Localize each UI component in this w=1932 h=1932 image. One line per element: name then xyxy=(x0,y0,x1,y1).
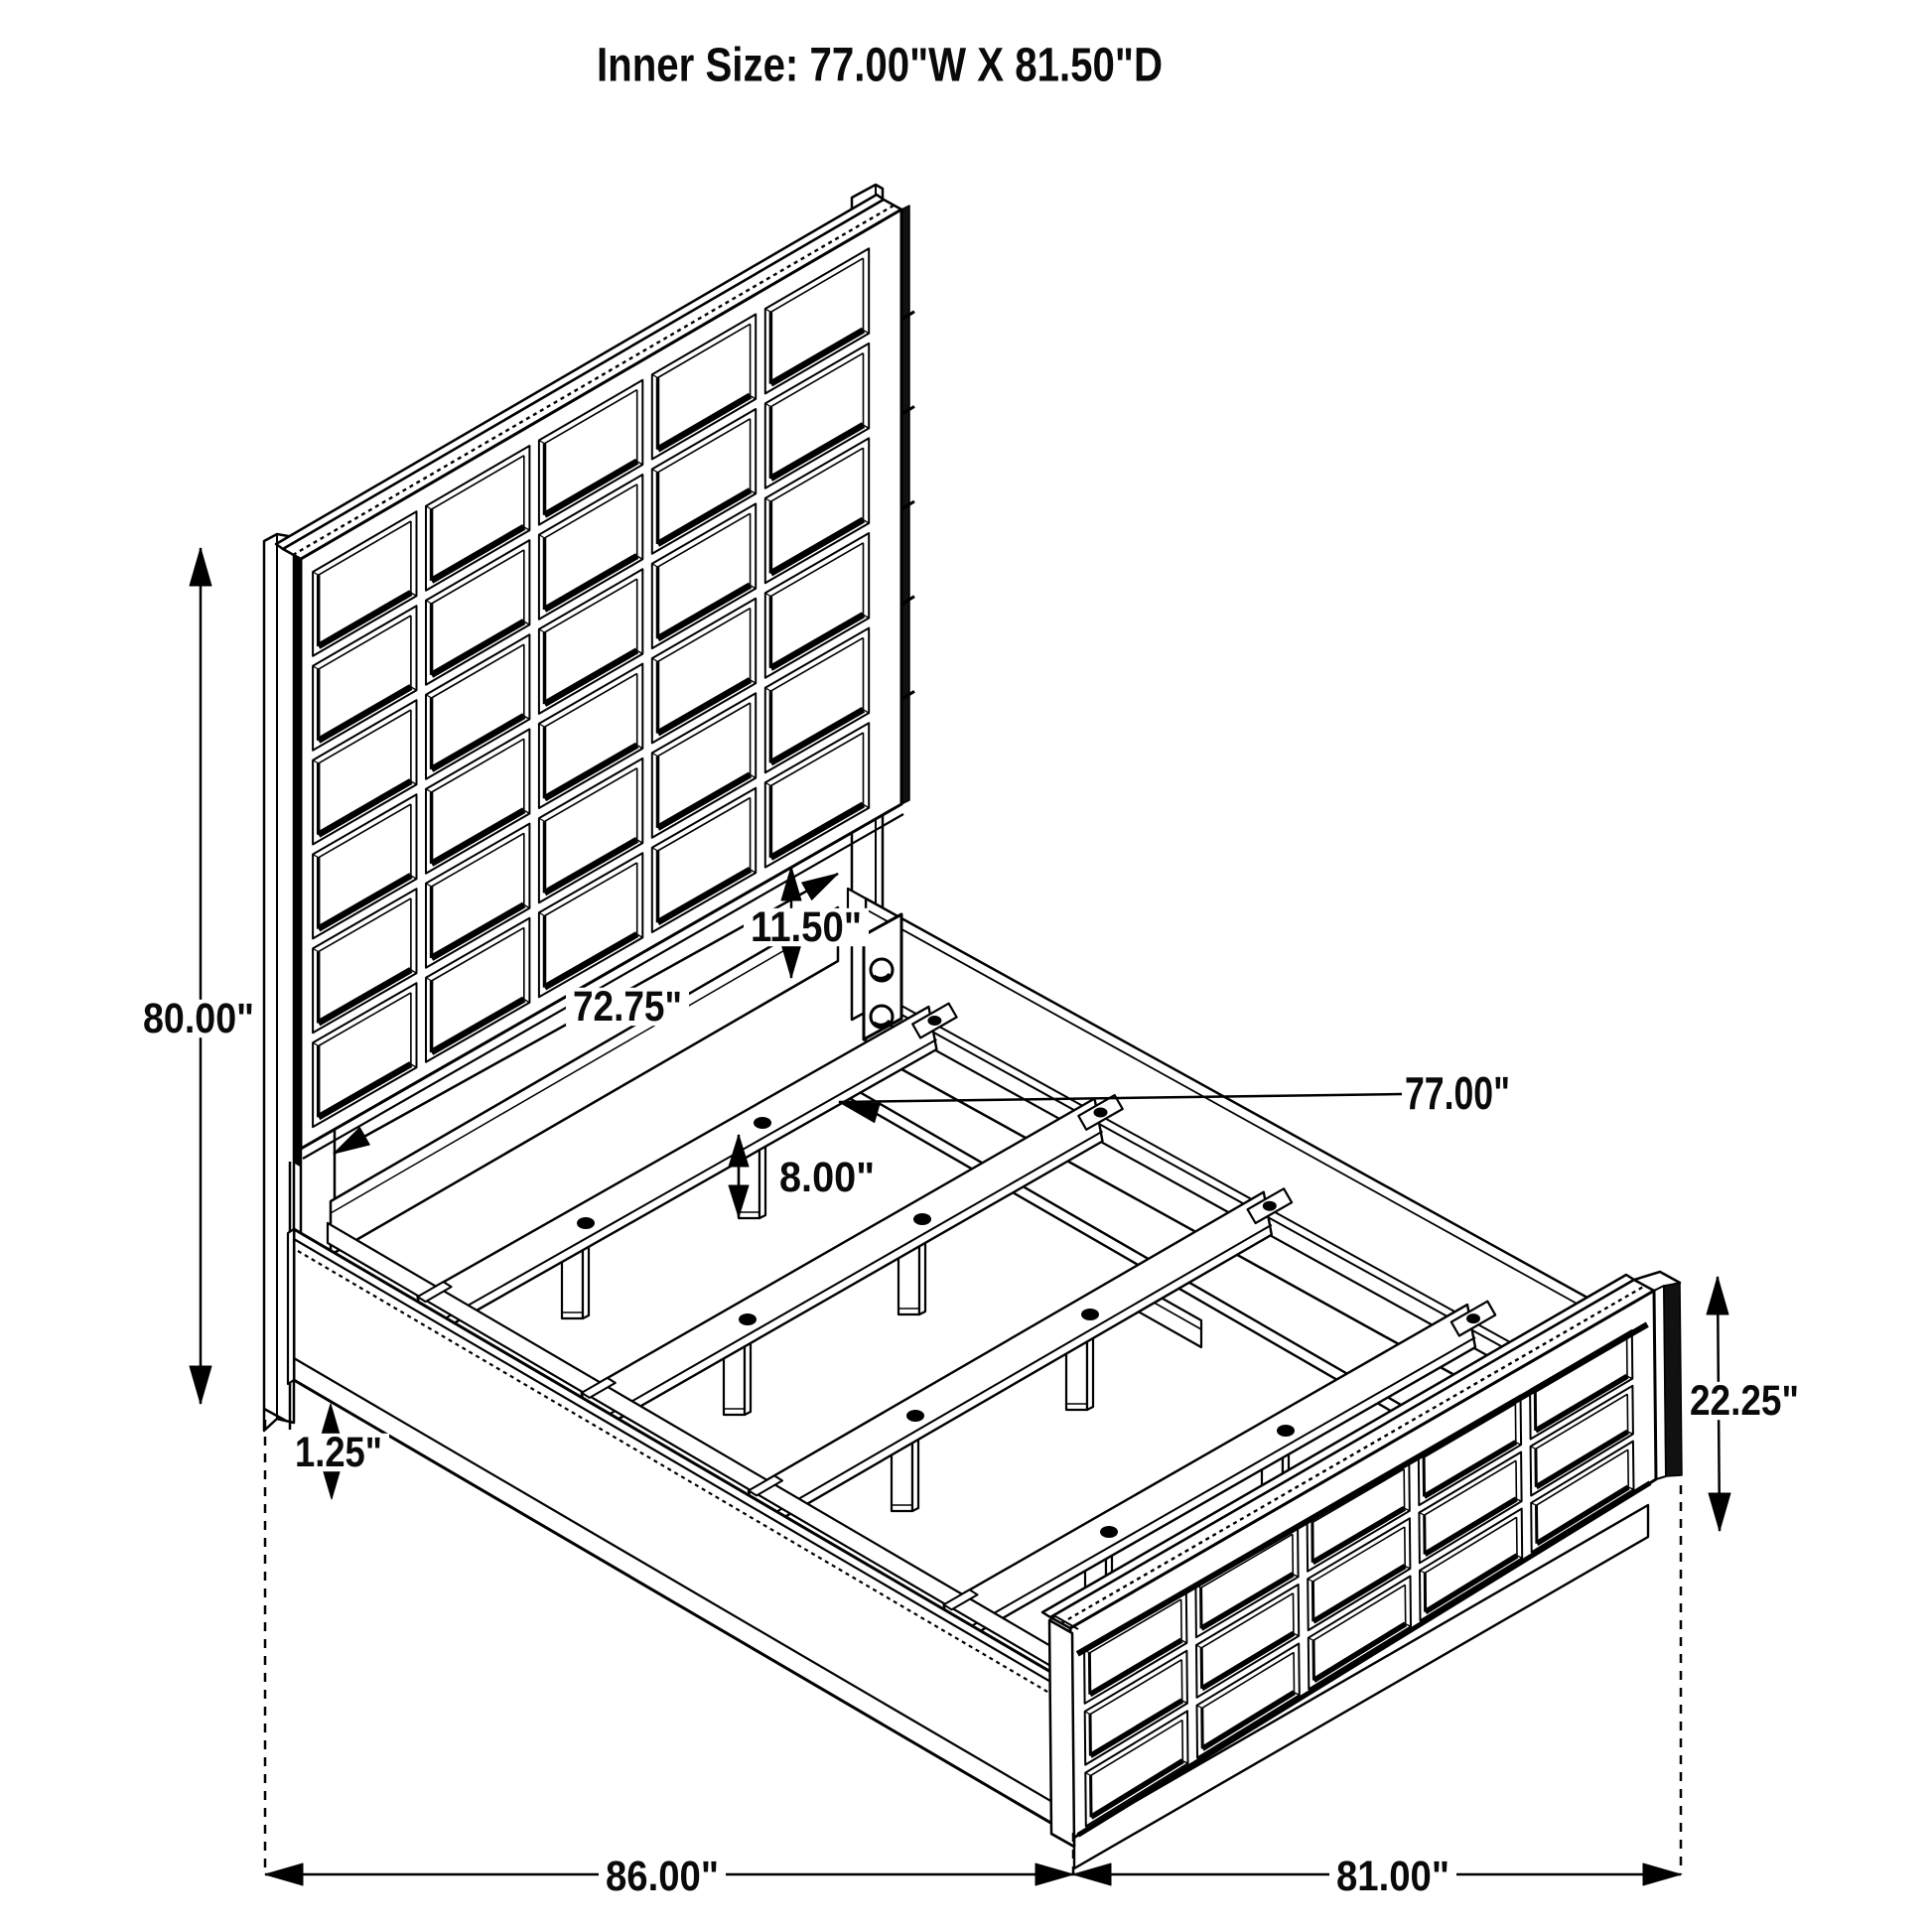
svg-text:77.00": 77.00" xyxy=(1405,1067,1510,1119)
svg-text:72.75": 72.75" xyxy=(573,983,682,1031)
svg-text:Inner Size: 77.00"W X 81.50"D: Inner Size: 77.00"W X 81.50"D xyxy=(597,40,1163,92)
svg-text:11.50": 11.50" xyxy=(751,903,862,951)
svg-text:80.00": 80.00" xyxy=(143,995,254,1042)
svg-text:81.00": 81.00" xyxy=(1336,1853,1449,1900)
svg-text:22.25": 22.25" xyxy=(1690,1377,1799,1425)
svg-text:86.00": 86.00" xyxy=(606,1853,719,1900)
svg-text:1.25": 1.25" xyxy=(295,1429,382,1476)
svg-text:8.00": 8.00" xyxy=(779,1154,875,1201)
